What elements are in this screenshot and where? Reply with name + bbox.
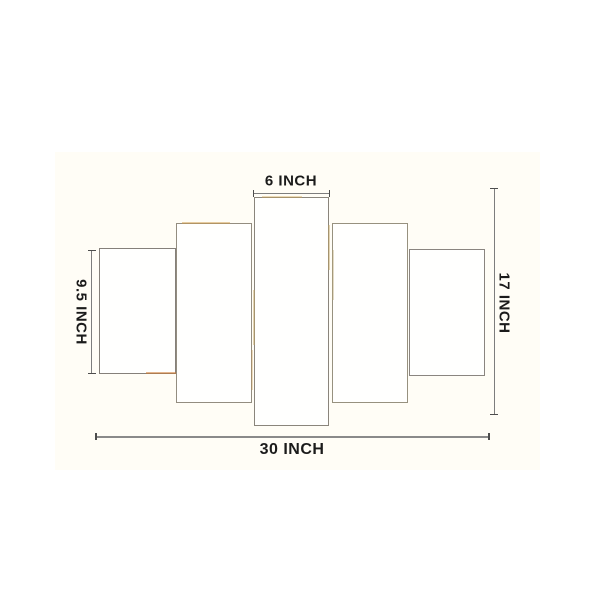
dimension-tick xyxy=(490,414,498,415)
left-height-label: 9.5 INCH xyxy=(73,279,90,345)
bottom-width-dimension-line xyxy=(95,436,490,438)
dimension-tick xyxy=(88,250,96,251)
canvas-panel-center xyxy=(254,197,329,426)
dimension-tick xyxy=(329,190,330,197)
top-width-dimension-line xyxy=(253,193,330,194)
top-width-label: 6 INCH xyxy=(265,173,317,190)
dimension-tick xyxy=(488,433,490,440)
bottom-width-label: 30 INCH xyxy=(260,441,325,459)
canvas-panel-outer-right xyxy=(409,249,485,376)
product-dimension-diagram: 6 INCH 30 INCH 9.5 INCH 17 INCH xyxy=(0,0,600,600)
canvas-panel-outer-left xyxy=(99,248,176,374)
left-height-dimension-line xyxy=(91,250,92,374)
canvas-panel-mid-left xyxy=(176,223,252,403)
canvas-panel-mid-right xyxy=(332,223,408,403)
right-height-label: 17 INCH xyxy=(496,272,513,333)
dimension-tick xyxy=(88,373,96,374)
dimension-tick xyxy=(253,190,254,197)
dimension-tick xyxy=(95,433,97,440)
dimension-tick xyxy=(490,188,498,189)
